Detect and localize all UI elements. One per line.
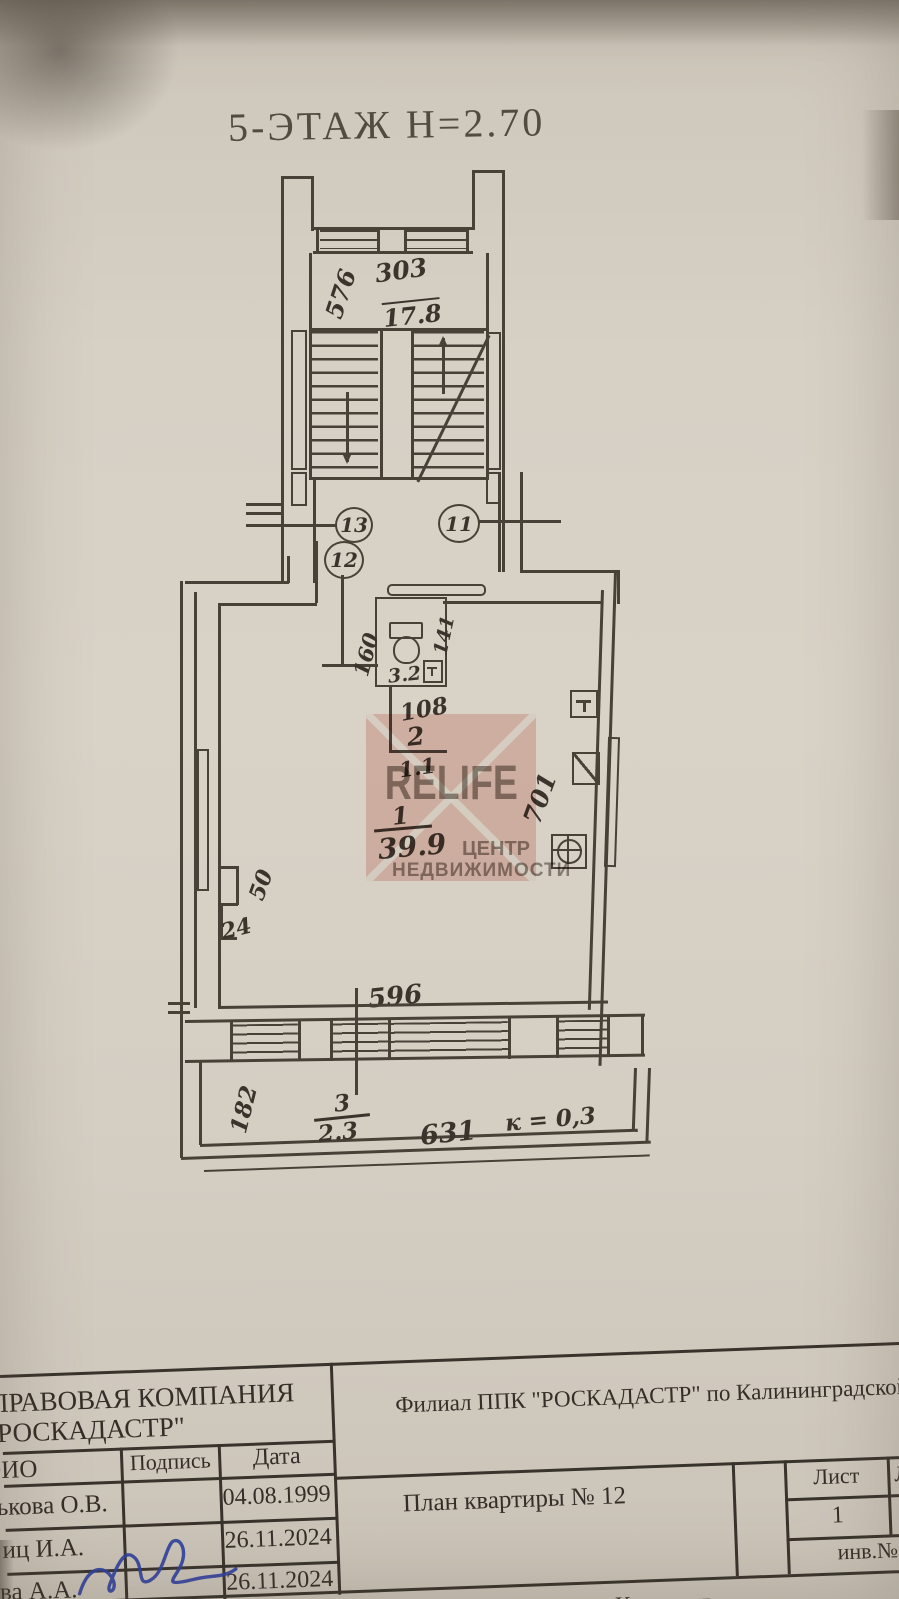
wall-hatch [246, 503, 283, 506]
footer-address-partial: область г.о. "Город Калининг [427, 1589, 712, 1599]
inventory-label: инв.№ [752, 1538, 899, 1568]
wall-line [520, 570, 619, 573]
wall-line [309, 477, 489, 480]
window-hatch [232, 1024, 298, 1058]
window-hatch [320, 230, 377, 249]
dim-landing-area: 17.8 [382, 297, 443, 331]
row-name: ькова О.В. [0, 1490, 108, 1522]
unit-number-13: 13 [335, 507, 373, 543]
watermark-brand: RELIFE [385, 760, 518, 808]
room-3-area: 2.3 [317, 1119, 359, 1146]
wall-hatch [168, 1002, 190, 1005]
wall-line [281, 176, 284, 231]
title-block: ПРАВОВАЯ КОМПАНИЯ "РОСКАДАСТР" ФИО Подпи… [0, 1339, 899, 1599]
lintel-beam [387, 584, 486, 596]
column-header-sign: Подпись [122, 1448, 219, 1476]
wall-line [508, 1017, 511, 1059]
wall-line [298, 1019, 301, 1061]
sheet-value: 1 [787, 1501, 888, 1531]
watermark-sub1: ЦЕНТР [430, 839, 530, 859]
balcony-outline [645, 1068, 650, 1143]
wall-line [199, 1061, 202, 1145]
dim-landing-width: 303 [374, 254, 429, 286]
dim-balcony-width: 631 [419, 1117, 478, 1150]
branch-name: Филиал ППК "РОСКАДАСТР" по Калининградск… [395, 1374, 899, 1418]
balcony-edge [204, 1154, 650, 1172]
toilet-bowl [393, 636, 420, 664]
signature [65, 1518, 247, 1599]
window-hatch [406, 230, 466, 249]
document-title: План квартиры № 12 [402, 1482, 626, 1518]
dim-niche-depth: 50 [246, 867, 277, 903]
wall-line [220, 903, 238, 906]
wall-line [180, 581, 183, 1063]
wall-line [180, 1061, 183, 1158]
wall-line [472, 170, 505, 173]
unit-number-13-label: 13 [340, 513, 368, 537]
table-line [785, 1492, 899, 1501]
radiator-niche [604, 737, 620, 867]
wall-line [218, 866, 238, 869]
unit-number-11: 11 [438, 504, 480, 543]
ventilation-symbol-cross [553, 849, 582, 851]
wall-line [641, 1014, 644, 1056]
wall-line [556, 1016, 559, 1058]
wall-line [617, 570, 620, 604]
leader-line [246, 524, 336, 527]
window-hatch [388, 1021, 508, 1056]
wall-line [502, 170, 505, 230]
wall-line [315, 541, 318, 603]
wall-hatch [246, 512, 283, 515]
room-3-number: 3 [333, 1091, 351, 1116]
stair-direction-arrow-up [442, 338, 445, 394]
balcony-outline [632, 1068, 637, 1130]
wall-line [486, 253, 489, 479]
wall-line [313, 251, 473, 254]
column-header-date: Дата [220, 1442, 334, 1473]
wall-line [311, 176, 314, 231]
radiator-niche [197, 749, 209, 891]
sheets-label-partial: Л [894, 1462, 899, 1487]
dimension-tick [355, 988, 358, 1095]
wall-line [443, 601, 603, 604]
unit-number-11-label: 11 [445, 512, 473, 536]
column-header-fio: ФИО [0, 1456, 38, 1486]
watermark-sub2: НЕДВИЖИМОСТИ [392, 861, 571, 880]
wall-line [466, 227, 469, 253]
wall-line [236, 866, 239, 905]
dim-niche-width: 24 [219, 915, 254, 944]
dim-wc-area-inner: 3.2 [387, 664, 422, 686]
stair-steps [414, 331, 484, 477]
sink-symbol [423, 660, 443, 683]
wall-line [588, 590, 604, 1010]
sink-symbol [431, 668, 433, 676]
leader-line [341, 575, 344, 665]
wall-line [388, 1018, 391, 1060]
table-line [732, 1462, 739, 1576]
wall-hatch [168, 1011, 190, 1014]
company-name-line2: "РОСКАДАСТР" [0, 1412, 185, 1449]
dim-balcony-depth: 182 [227, 1083, 261, 1135]
wall-line [281, 228, 284, 584]
unit-number-12-label: 12 [330, 548, 358, 572]
dim-wc-depth: 141 [431, 614, 458, 657]
window-slit [291, 330, 307, 470]
stair-direction-arrow-down [346, 392, 349, 462]
unit-number-12: 12 [324, 541, 364, 579]
stair-spine [380, 328, 383, 480]
wall-line [218, 603, 221, 1008]
window-hatch [332, 1023, 388, 1057]
wall-line [330, 1019, 333, 1061]
sheet-label: Лист [786, 1463, 887, 1491]
row-date: 04.08.1999 [217, 1481, 336, 1512]
wall-line [281, 176, 314, 179]
wall-line [404, 227, 407, 253]
duct-symbol [572, 752, 600, 785]
window-hatch [558, 1020, 608, 1054]
wall-line [316, 227, 319, 253]
wall-line [377, 227, 380, 253]
dim-room-width: 596 [367, 981, 424, 1013]
wall-line [230, 1020, 233, 1062]
wall-line [185, 581, 289, 584]
wall-line [472, 170, 475, 230]
dim-landing-depth: 576 [322, 266, 360, 321]
row-name: ва А.А. [0, 1576, 78, 1599]
window-slit [291, 472, 307, 506]
wall-line [287, 556, 290, 583]
leader-line [479, 520, 561, 523]
wall-line [218, 603, 317, 606]
wall-line [607, 1015, 610, 1057]
photographed-floor-plan-document: 5-ЭТАЖ Н=2.70 303 17.8 576 [0, 0, 899, 1599]
electric-panel-symbol [583, 702, 586, 712]
